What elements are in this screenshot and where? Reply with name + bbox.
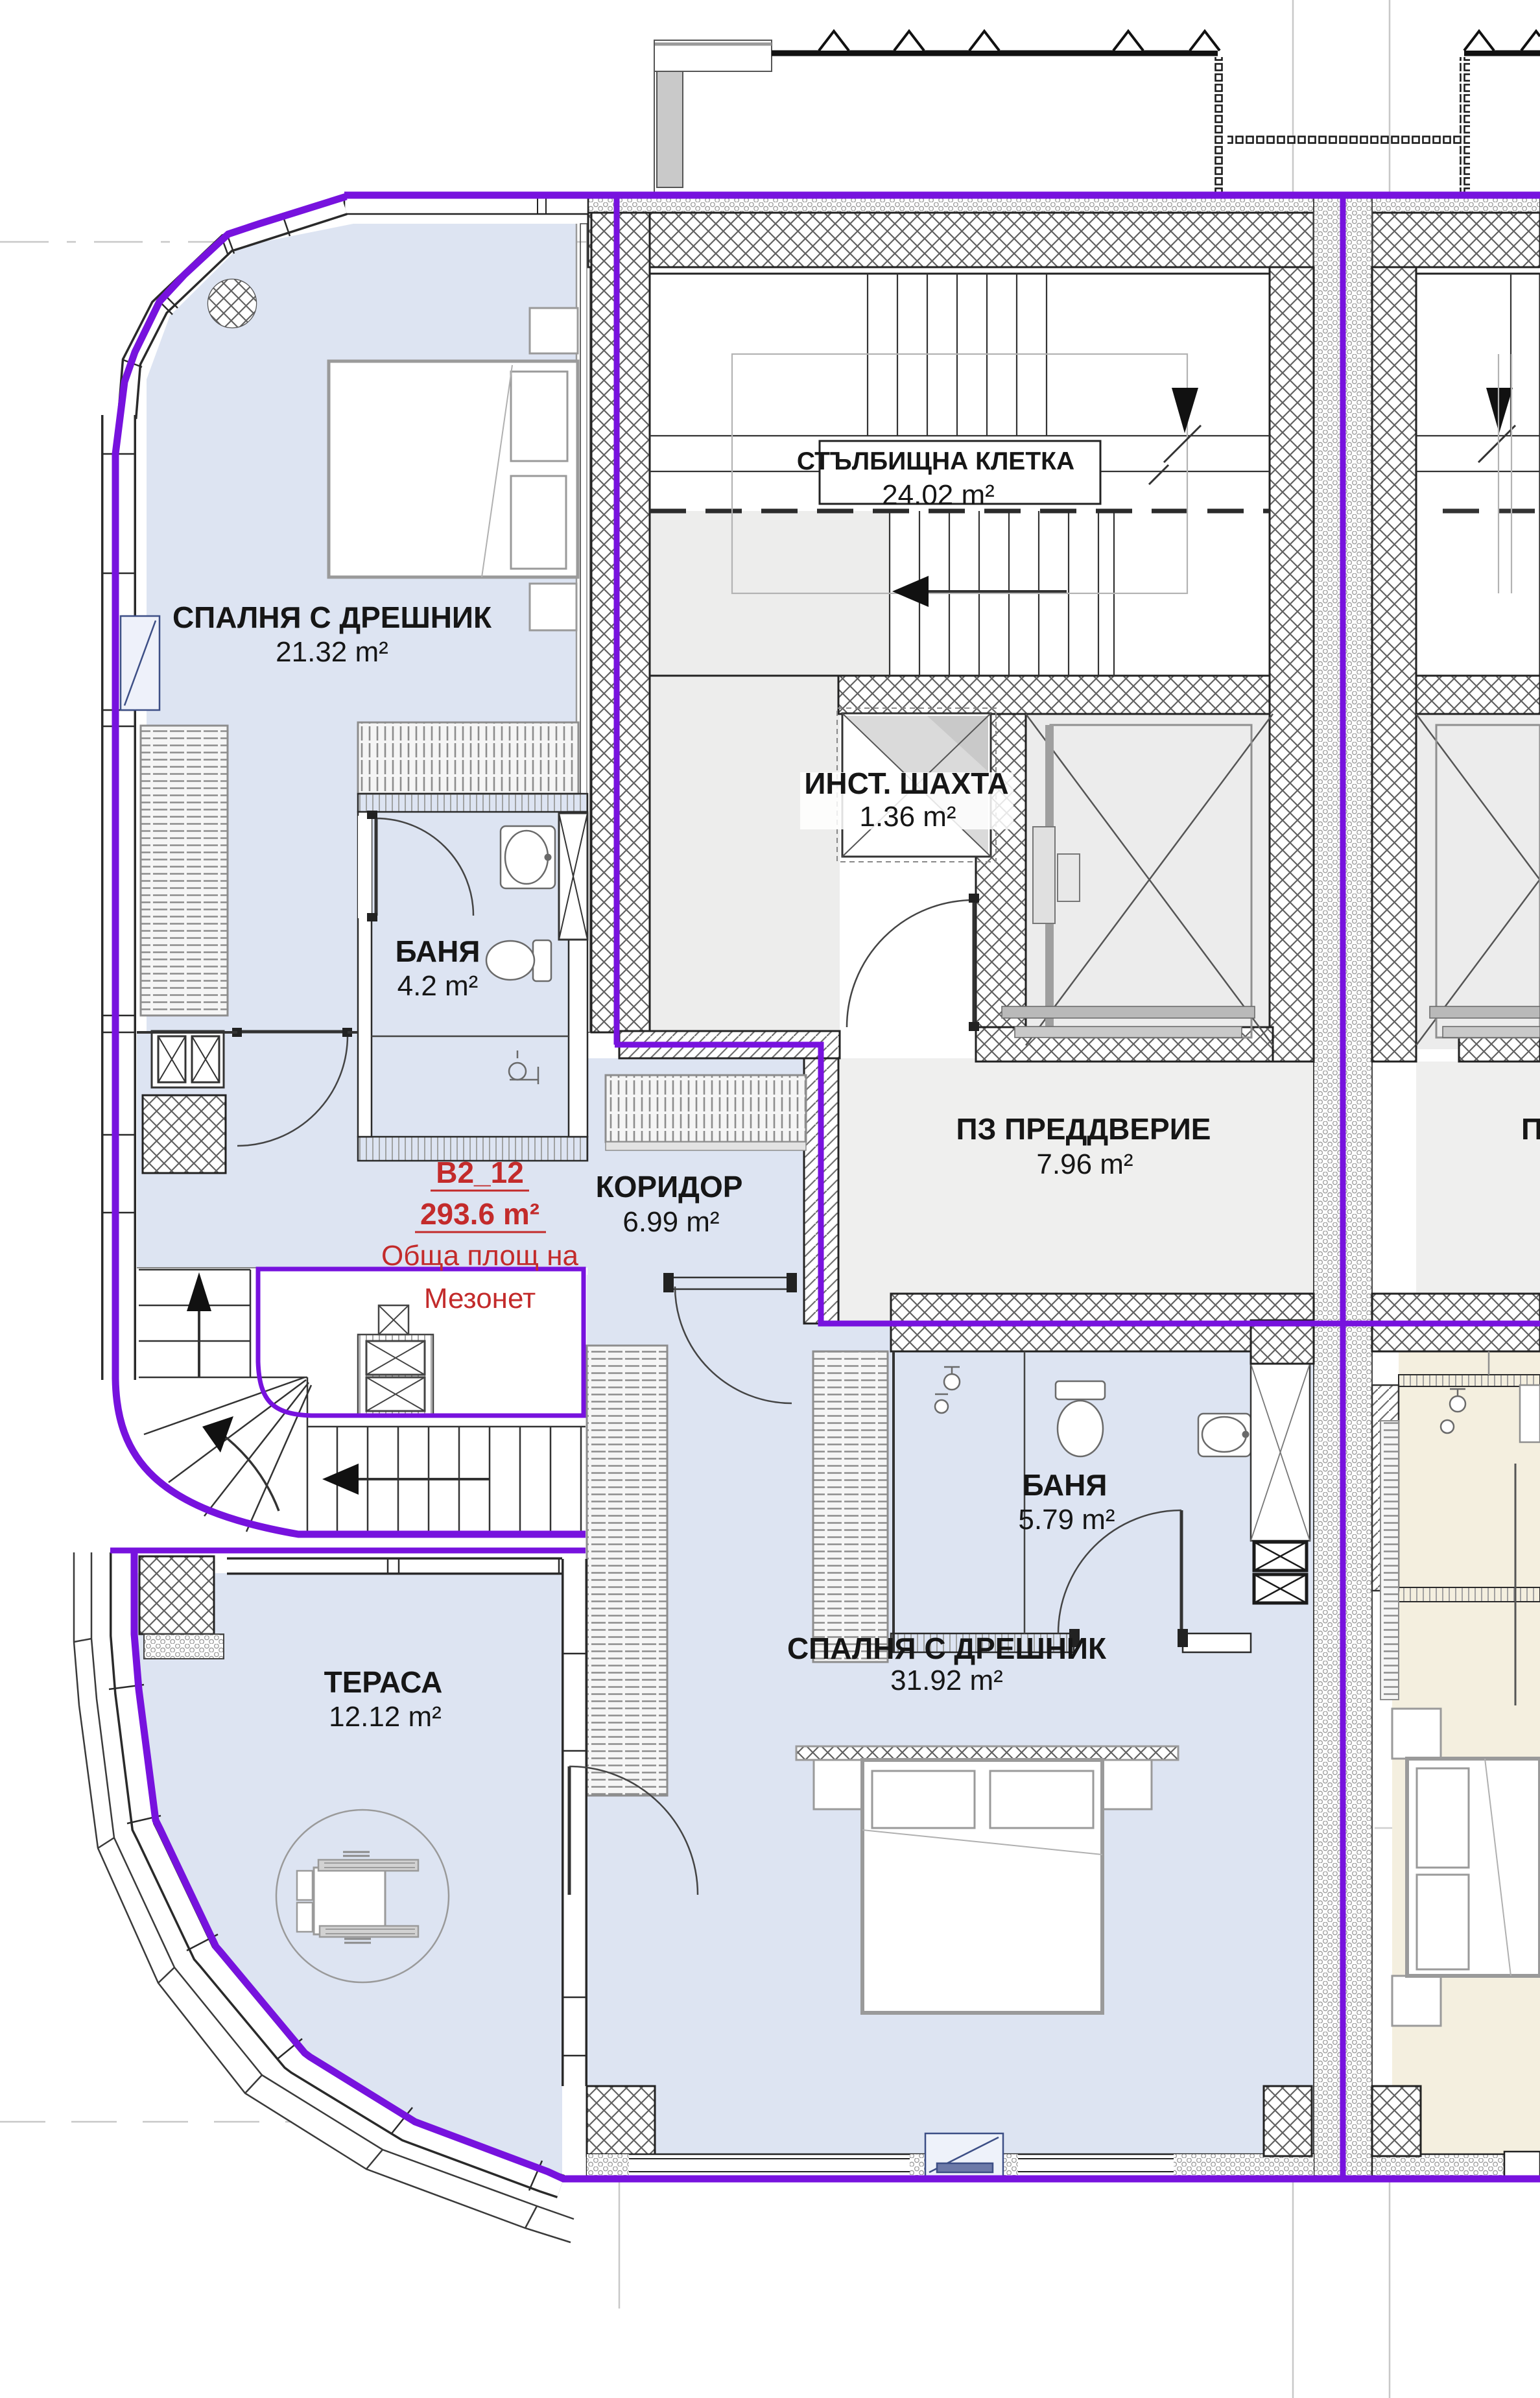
svg-text:ИНСТ. ШАХТА: ИНСТ. ШАХТА <box>804 766 1008 800</box>
svg-text:12.12 m²: 12.12 m² <box>329 1701 442 1733</box>
svg-text:БАНЯ: БАНЯ <box>1023 1468 1108 1502</box>
svg-text:21.32 m²: 21.32 m² <box>276 636 388 668</box>
svg-text:293.6 m²: 293.6 m² <box>420 1197 539 1231</box>
svg-text:Мезонет: Мезонет <box>424 1283 536 1314</box>
svg-text:ТЕРАСА: ТЕРАСА <box>324 1665 443 1699</box>
svg-text:СТЪЛБИЩНА КЛЕТКА: СТЪЛБИЩНА КЛЕТКА <box>797 447 1074 475</box>
svg-text:1.36 m²: 1.36 m² <box>859 801 956 833</box>
svg-text:31.92 m²: 31.92 m² <box>890 1665 1003 1696</box>
svg-text:24.02 m²: 24.02 m² <box>882 479 995 511</box>
svg-text:7.96 m²: 7.96 m² <box>1036 1148 1133 1180</box>
svg-text:СПАЛНЯ С ДРЕШНИК: СПАЛНЯ С ДРЕШНИК <box>787 1632 1107 1665</box>
svg-text:СПАЛНЯ С ДРЕШНИК: СПАЛНЯ С ДРЕШНИК <box>172 600 492 634</box>
svg-text:БАНЯ: БАНЯ <box>396 934 480 968</box>
svg-text:В2_12: В2_12 <box>436 1156 524 1189</box>
svg-text:5.79 m²: 5.79 m² <box>1018 1504 1115 1536</box>
svg-text:Обща площ на: Обща площ на <box>381 1240 579 1272</box>
svg-text:4.2 m²: 4.2 m² <box>397 970 479 1002</box>
svg-text:ПЗ ПРЕДДВЕРИЕ: ПЗ ПРЕДДВЕРИЕ <box>956 1112 1211 1146</box>
svg-text:П: П <box>1521 1112 1540 1146</box>
svg-text:6.99 m²: 6.99 m² <box>622 1206 719 1238</box>
svg-text:КОРИДОР: КОРИДОР <box>596 1170 743 1204</box>
